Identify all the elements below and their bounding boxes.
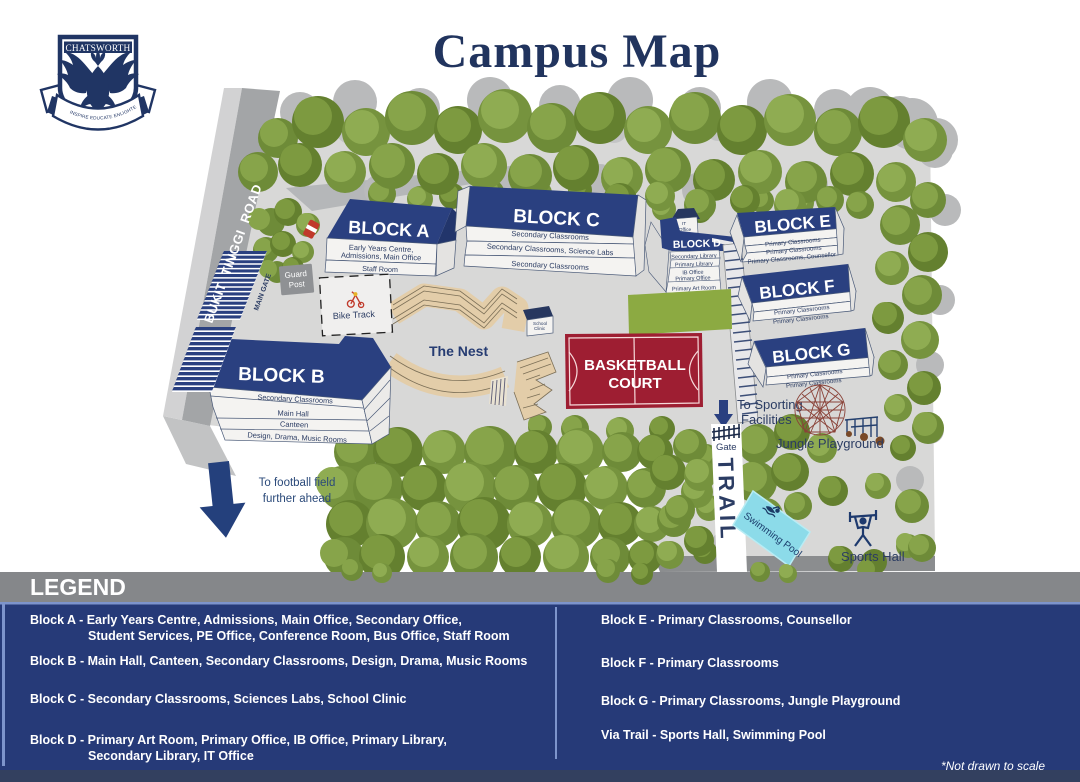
svg-text:The Nest: The Nest [429,343,488,359]
svg-text:BLOCK B: BLOCK B [238,364,325,388]
svg-text:Block D - Primary Art Room, Pr: Block D - Primary Art Room, Primary Offi… [30,733,447,747]
svg-text:further ahead: further ahead [263,493,331,505]
svg-text:TRAIL: TRAIL [713,457,741,543]
svg-text:BLOCK A: BLOCK A [348,217,430,241]
svg-text:Campus Map: Campus Map [433,25,722,78]
svg-text:Post: Post [288,279,306,289]
svg-text:LEGEND: LEGEND [30,574,126,600]
svg-text:Block E - Primary Classrooms,: Block E - Primary Classrooms, Counsellor [601,613,852,627]
svg-text:BASKETBALL: BASKETBALL [584,357,686,374]
svg-text:Student Services, PE Office, C: Student Services, PE Office, Conference … [88,629,510,643]
svg-text:Via Trail - Sports Hall, Swimm: Via Trail - Sports Hall, Swimming Pool [601,728,826,742]
svg-text:Block C - Secondary Classrooms: Block C - Secondary Classrooms, Sciences… [30,692,407,706]
svg-text:*Not drawn to scale: *Not drawn to scale [941,759,1045,773]
svg-text:BLOCK D: BLOCK D [673,237,722,251]
svg-text:Secondary Library, IT Office: Secondary Library, IT Office [88,749,254,763]
svg-text:Sports Hall: Sports Hall [841,549,905,564]
svg-text:Block A - Early Years Centre,: Block A - Early Years Centre, Admissions… [30,613,462,627]
svg-text:To Sporting: To Sporting [737,397,803,412]
svg-text:Staff Room: Staff Room [362,264,398,274]
svg-text:Jungle Playground: Jungle Playground [776,436,884,451]
svg-text:COURT: COURT [608,375,661,392]
svg-text:Canteen: Canteen [280,420,309,430]
svg-text:Clinic: Clinic [534,326,546,331]
svg-text:Primary Office: Primary Office [675,275,711,282]
svg-text:To football field: To football field [259,477,336,489]
svg-text:Block F - Primary Classrooms: Block F - Primary Classrooms [601,656,779,670]
svg-text:Block G - Primary Classrooms,: Block G - Primary Classrooms, Jungle Pla… [601,694,900,708]
svg-text:Block B - Main Hall, Canteen,: Block B - Main Hall, Canteen, Secondary … [30,654,527,668]
svg-text:Gate: Gate [716,442,737,453]
svg-text:Facilities: Facilities [741,412,792,427]
svg-text:IT: IT [682,221,686,227]
svg-text:Main Hall: Main Hall [277,408,309,418]
